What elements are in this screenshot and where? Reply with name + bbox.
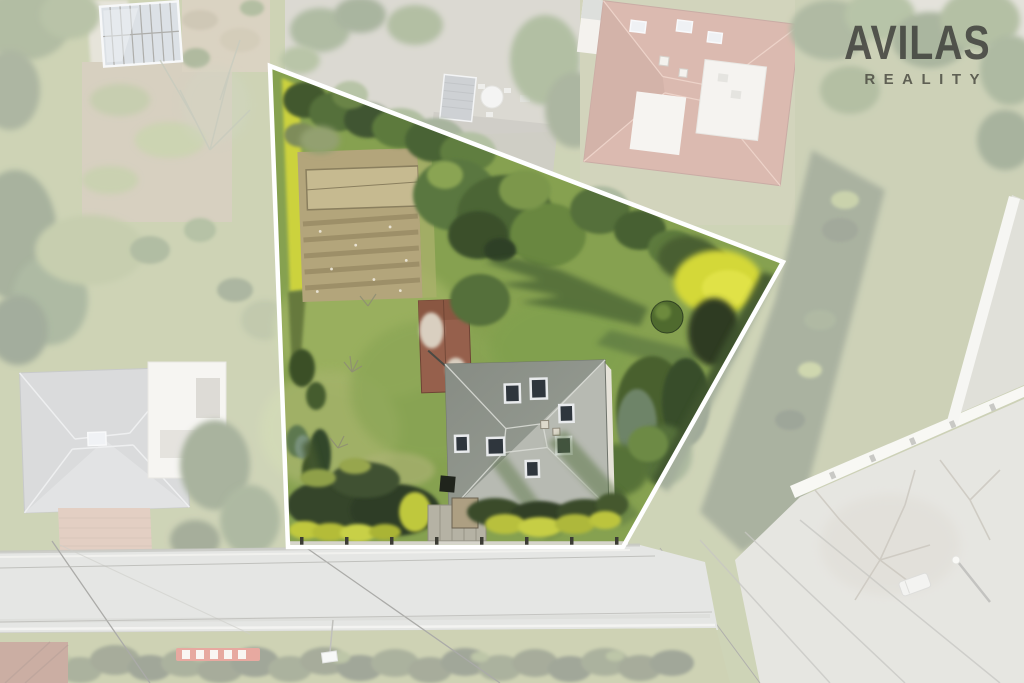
cold-frame [306, 166, 419, 210]
brand-name: AVILAS [844, 20, 990, 68]
dark-bin [439, 475, 455, 492]
chimney [553, 428, 560, 435]
aerial-scene [0, 0, 1024, 683]
brand-tagline: REALITY [812, 71, 988, 88]
real-estate-aerial-photo: AVILAS REALITY [0, 0, 1024, 683]
chimney [541, 420, 549, 428]
vegetable-beds [297, 147, 436, 302]
brand-watermark: AVILAS REALITY [812, 20, 990, 88]
